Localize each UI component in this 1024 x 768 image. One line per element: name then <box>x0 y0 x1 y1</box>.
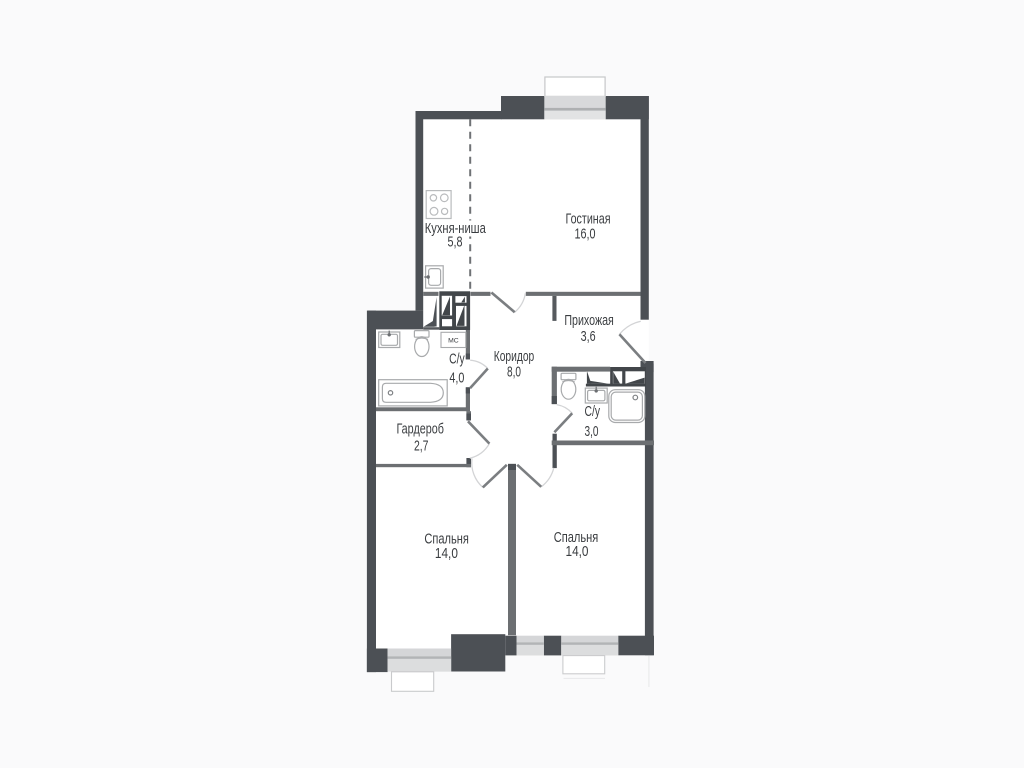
svg-text:14,0: 14,0 <box>566 543 589 560</box>
svg-text:4,0: 4,0 <box>449 369 464 386</box>
svg-text:3,6: 3,6 <box>581 328 596 345</box>
svg-text:С/у: С/у <box>449 351 465 368</box>
svg-text:С/у: С/у <box>585 403 601 420</box>
svg-text:Прихожая: Прихожая <box>564 312 614 329</box>
svg-text:16,0: 16,0 <box>575 225 596 242</box>
svg-text:8,0: 8,0 <box>507 363 521 380</box>
svg-text:2,7: 2,7 <box>414 438 429 455</box>
svg-text:14,0: 14,0 <box>435 545 458 562</box>
svg-text:МС: МС <box>448 337 459 344</box>
svg-text:Гардероб: Гардероб <box>396 421 444 438</box>
svg-text:5,8: 5,8 <box>448 234 463 251</box>
svg-text:3,0: 3,0 <box>585 423 599 440</box>
